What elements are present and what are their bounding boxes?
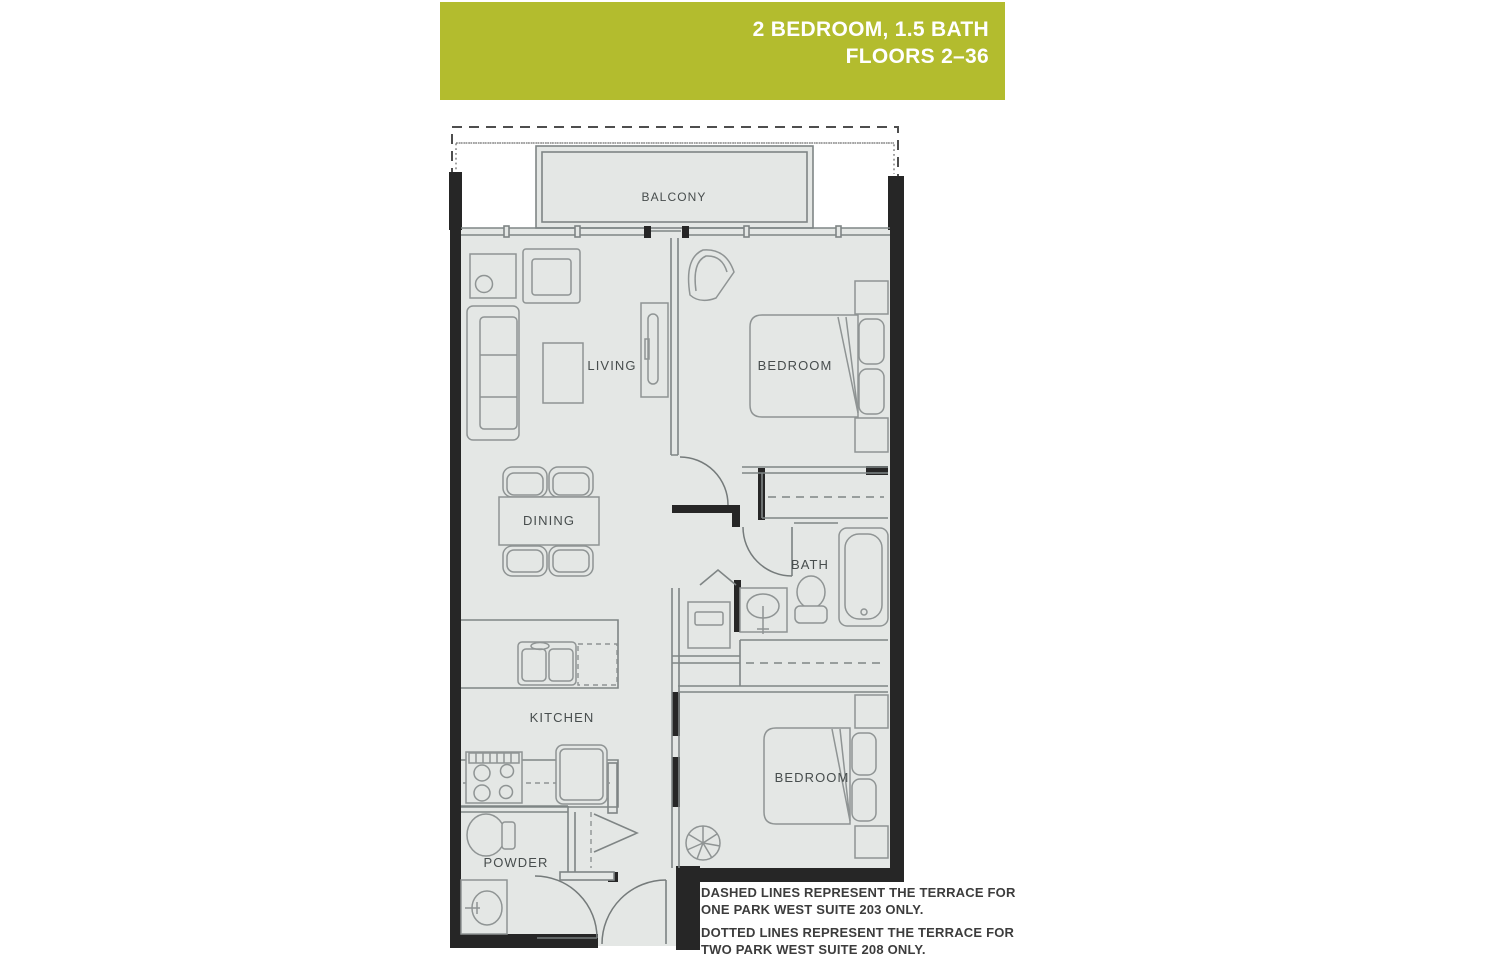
toilet-icon [795,576,827,623]
note-dotted-line2: TWO PARK WEST SUITE 208 ONLY. [701,942,926,957]
dining-area: DINING [499,467,599,576]
floor-plan: BALCONY [0,0,1506,960]
dining-chair-icon [503,546,547,576]
washer-dryer-icon [688,602,730,648]
coffee-table-icon [543,343,583,403]
note-dashed-line2: ONE PARK WEST SUITE 203 ONLY. [701,902,924,917]
dining-chair-icon [549,467,593,497]
powder-label: POWDER [483,855,548,870]
bathtub-icon [839,528,888,626]
nightstand-icon [855,281,888,314]
sofa-icon [467,306,519,440]
stove-icon [466,752,522,803]
plan-notes: DASHED LINES REPRESENT THE TERRACE FOR O… [701,885,1016,957]
bedroom-lower-label: BEDROOM [775,770,850,785]
nightstand-icon [855,826,888,858]
powder-sink-icon [461,880,507,934]
balcony-label: BALCONY [641,190,706,204]
fridge-icon [556,745,607,804]
kitchen-label: KITCHEN [530,710,595,725]
living-label: LIVING [587,358,636,373]
note-dashed-line1: DASHED LINES REPRESENT THE TERRACE FOR [701,885,1016,900]
dining-label: DINING [523,513,575,528]
bath-sink-icon [740,588,787,634]
nightstand-icon [855,418,888,452]
dining-chair-icon [549,546,593,576]
nightstand-icon [855,695,888,728]
dining-chair-icon [503,467,547,497]
floor-plan-page: 2 BEDROOM, 1.5 BATH FLOORS 2–36 BALCONY [0,0,1506,960]
kitchen-sink-icon [518,642,576,685]
bedroom-upper-label: BEDROOM [758,358,833,373]
bath-label: BATH [791,557,829,572]
tv-unit-icon [641,303,668,397]
note-dotted-line1: DOTTED LINES REPRESENT THE TERRACE FOR [701,925,1015,940]
side-table-icon [470,254,516,298]
armchair-icon [523,249,580,303]
balcony-area: BALCONY [536,146,813,228]
